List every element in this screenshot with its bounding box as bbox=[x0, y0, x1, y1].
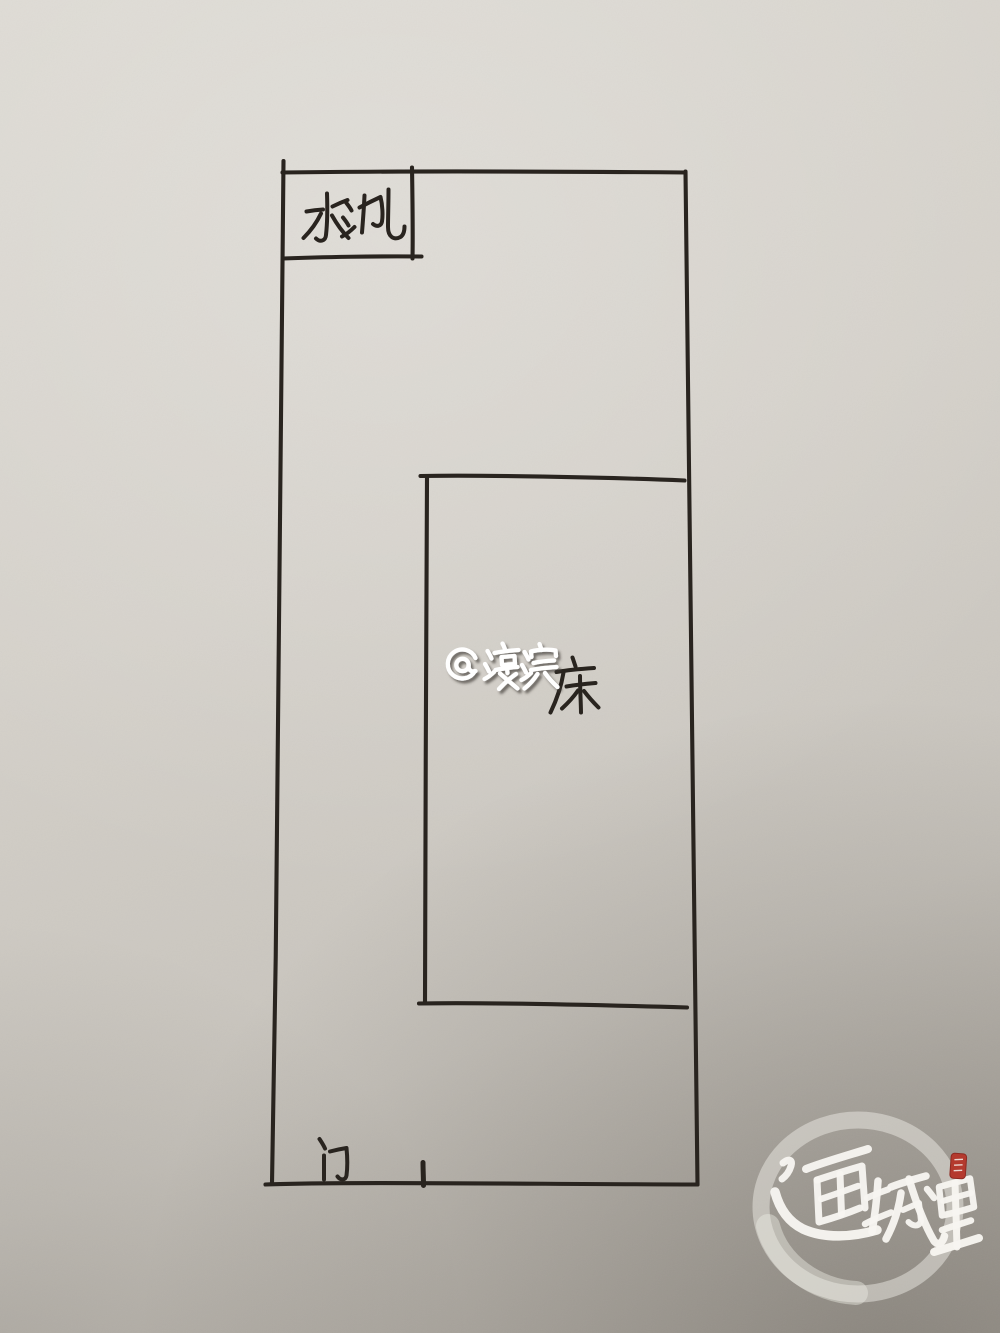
paper-photo: 水池 床 门 @濠滨 通城里 bbox=[0, 0, 1000, 1333]
paper-grain-texture bbox=[0, 0, 1000, 1333]
floorplan-sketch bbox=[0, 0, 1000, 1333]
room-wall-top bbox=[283, 172, 686, 173]
bed-left-edge bbox=[425, 478, 427, 1004]
door-tick-mark bbox=[423, 1163, 424, 1186]
logo-red-seal bbox=[950, 1153, 967, 1179]
sink-box-bottom-edge bbox=[283, 256, 422, 258]
sink-box-right-edge bbox=[412, 168, 413, 259]
room-wall-bottom bbox=[266, 1183, 698, 1184]
